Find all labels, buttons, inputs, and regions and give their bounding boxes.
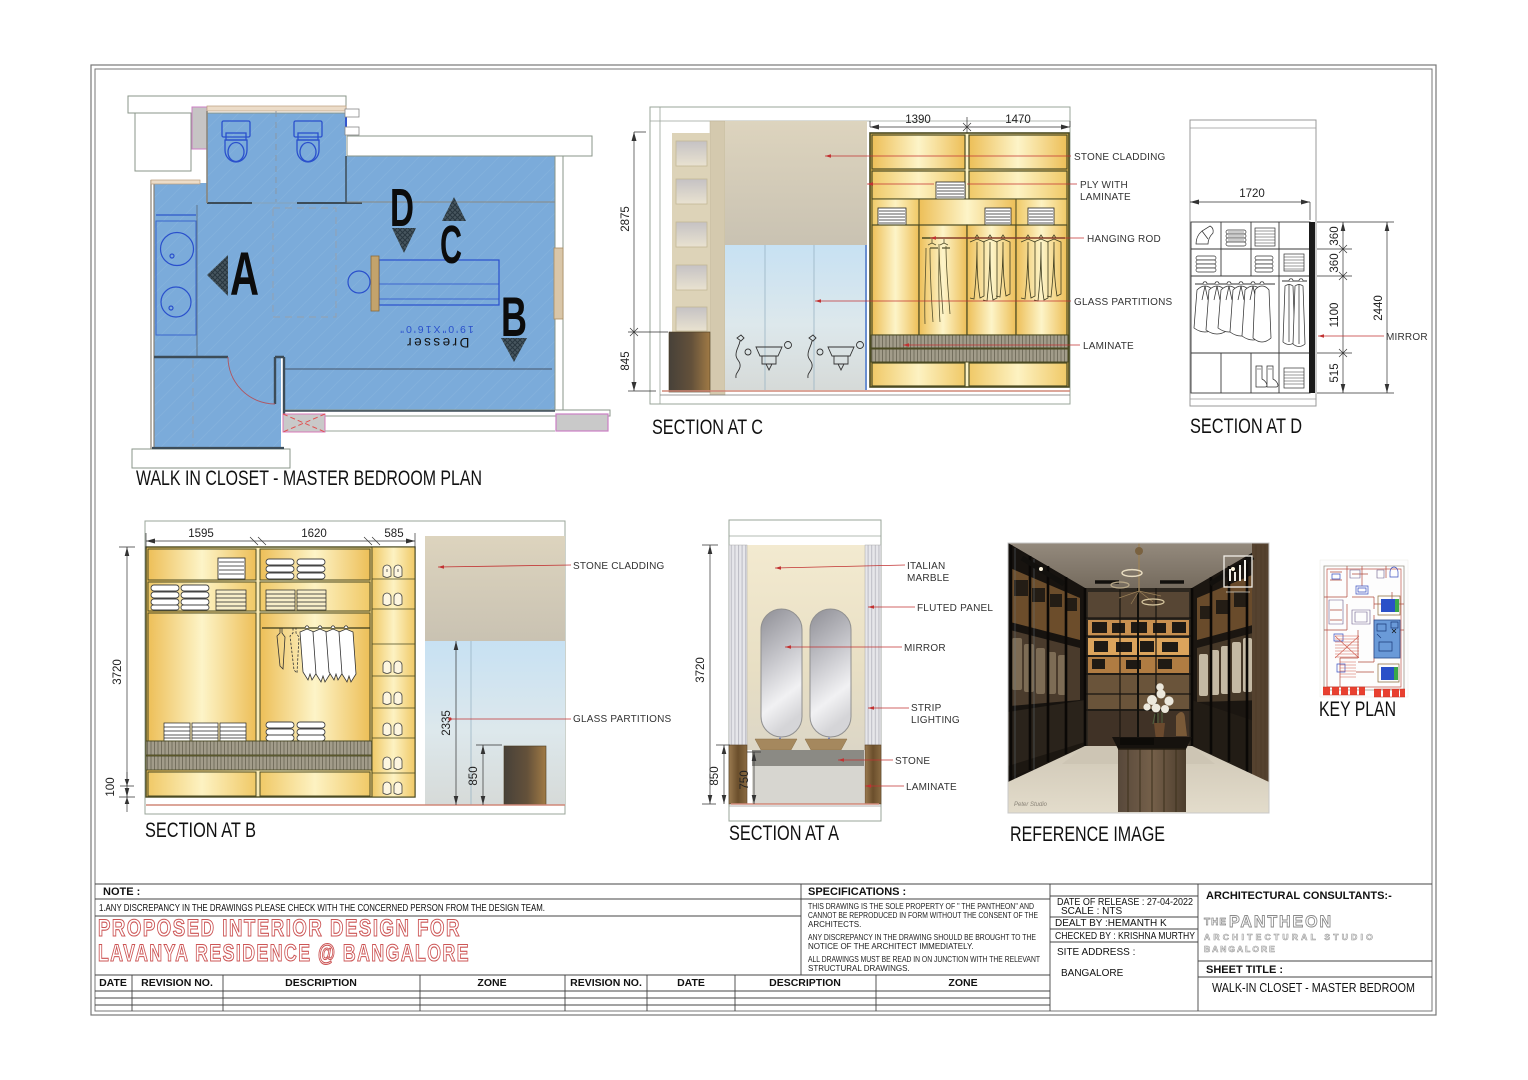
svg-text:STONE CLADDING: STONE CLADDING — [573, 561, 665, 572]
svg-text:FLUTED PANEL: FLUTED PANEL — [917, 603, 993, 614]
svg-text:850: 850 — [468, 766, 480, 785]
svg-text:NOTICE OF THE ARCHITECT IMMED: NOTICE OF THE ARCHITECT IMMEDIATELY. — [808, 942, 974, 951]
svg-text:STRIP: STRIP — [911, 703, 942, 714]
svg-text:2335: 2335 — [441, 710, 453, 736]
svg-text:3720: 3720 — [112, 659, 124, 685]
svg-text:850: 850 — [709, 766, 721, 785]
svg-text:NOTE :: NOTE : — [103, 886, 140, 898]
svg-text:DATE: DATE — [99, 977, 127, 989]
svg-text:DESCRIPTION: DESCRIPTION — [285, 977, 357, 989]
svg-text:1470: 1470 — [1005, 114, 1031, 126]
svg-text:1620: 1620 — [301, 528, 327, 540]
svg-text:CANNOT BE REPRODUCED IN FORM W: CANNOT BE REPRODUCED IN FORM WITHOUT THE… — [808, 911, 1038, 920]
svg-text:360: 360 — [1329, 253, 1341, 272]
svg-text:SPECIFICATIONS :: SPECIFICATIONS : — [808, 886, 906, 898]
svg-text:ANY DISCREPANCY IN THE DRAWING: ANY DISCREPANCY IN THE DRAWING SHOULD BE… — [808, 933, 1036, 942]
svg-text:THE: THE — [1204, 917, 1227, 928]
svg-text:LAMINATE: LAMINATE — [1083, 341, 1134, 352]
svg-text:DATE: DATE — [677, 977, 705, 989]
svg-text:BANGALORE: BANGALORE — [1061, 968, 1124, 979]
svg-text:3720: 3720 — [695, 657, 707, 683]
svg-text:DESCRIPTION: DESCRIPTION — [769, 977, 841, 989]
svg-text:1595: 1595 — [188, 528, 214, 540]
svg-text:SECTION AT C: SECTION AT C — [652, 416, 763, 439]
svg-text:ZONE: ZONE — [948, 977, 977, 989]
svg-text:SHEET TITLE :: SHEET TITLE : — [1206, 964, 1283, 976]
svg-text:REVISION NO.: REVISION NO. — [570, 977, 642, 989]
svg-text:GLASS PARTITIONS: GLASS PARTITIONS — [573, 714, 672, 725]
svg-text:845: 845 — [620, 351, 632, 370]
svg-text:MIRROR: MIRROR — [904, 643, 946, 654]
svg-text:CHECKED BY : KRISHNA MURTHY: CHECKED BY : KRISHNA MURTHY — [1055, 931, 1195, 942]
svg-text:ALL DRAWINGS MUST BE READ IN O: ALL DRAWINGS MUST BE READ IN ON JUNCTION… — [808, 955, 1040, 964]
svg-text:1.ANY DISCREPANCY IN THE DRAWI: 1.ANY DISCREPANCY IN THE DRAWINGS PLEASE… — [99, 903, 545, 914]
svg-text:SCALE : NTS: SCALE : NTS — [1061, 906, 1122, 917]
svg-text:1100: 1100 — [1329, 303, 1341, 328]
svg-text:HANGING ROD: HANGING ROD — [1087, 234, 1161, 245]
svg-text:2875: 2875 — [620, 206, 632, 232]
svg-text:THIS DRAWING IS THE SOLE PROPE: THIS DRAWING IS THE SOLE PROPERTY OF " T… — [808, 902, 1034, 911]
svg-text:SECTION AT A: SECTION AT A — [729, 822, 839, 845]
svg-text:100: 100 — [105, 777, 117, 796]
svg-text:750: 750 — [739, 770, 751, 789]
svg-text:PLY WITH: PLY WITH — [1080, 180, 1128, 191]
svg-text:GLASS PARTITIONS: GLASS PARTITIONS — [1074, 297, 1173, 308]
svg-text:ITALIAN: ITALIAN — [907, 561, 945, 572]
svg-text:Dresser: Dresser — [405, 335, 470, 350]
svg-text:SITE ADDRESS :: SITE ADDRESS : — [1057, 947, 1135, 958]
svg-text:ARCHITECTURAL STUDIO: ARCHITECTURAL STUDIO — [1204, 932, 1376, 942]
svg-text:2440: 2440 — [1373, 295, 1385, 321]
svg-text:STONE CLADDING: STONE CLADDING — [1074, 152, 1166, 163]
svg-text:LAVANYA RESIDENCE @ BANGALORE: LAVANYA RESIDENCE @ BANGALORE — [98, 940, 470, 967]
svg-text:STONE: STONE — [895, 756, 930, 767]
svg-text:PANTHEON: PANTHEON — [1229, 912, 1333, 931]
svg-text:ARCHITECTURAL CONSULTANTS:-: ARCHITECTURAL CONSULTANTS:- — [1206, 890, 1392, 902]
svg-text:Peter Studio: Peter Studio — [1014, 802, 1048, 808]
svg-text:REVISION NO.: REVISION NO. — [141, 977, 213, 989]
svg-text:PROPOSED INTERIOR DESIGN FOR: PROPOSED INTERIOR DESIGN FOR — [98, 915, 461, 942]
svg-text:LAMINATE: LAMINATE — [1080, 192, 1131, 203]
svg-text:KEY PLAN: KEY PLAN — [1319, 698, 1396, 721]
svg-text:WALK-IN CLOSET - MASTER BEDROO: WALK-IN CLOSET - MASTER BEDROOM — [1212, 980, 1415, 995]
svg-text:LAMINATE: LAMINATE — [906, 782, 957, 793]
svg-text:BANGALORE: BANGALORE — [1204, 944, 1277, 954]
svg-text:ARCHITECTS.: ARCHITECTS. — [808, 920, 861, 929]
svg-text:SECTION AT B: SECTION AT B — [145, 819, 256, 842]
svg-text:MARBLE: MARBLE — [907, 573, 949, 584]
svg-text:360: 360 — [1329, 226, 1341, 245]
svg-text:WALK IN CLOSET - MASTER BEDROO: WALK IN CLOSET - MASTER BEDROOM PLAN — [136, 467, 482, 490]
svg-text:DEALT BY :HEMANTH K: DEALT BY :HEMANTH K — [1055, 918, 1167, 929]
svg-text:STRUCTURAL DRAWINGS.: STRUCTURAL DRAWINGS. — [808, 964, 910, 973]
svg-text:585: 585 — [384, 528, 403, 540]
svg-text:19'0"X16'0": 19'0"X16'0" — [398, 323, 474, 335]
svg-text:LIGHTING: LIGHTING — [911, 715, 960, 726]
svg-text:SECTION AT D: SECTION AT D — [1190, 415, 1302, 438]
svg-text:ZONE: ZONE — [477, 977, 506, 989]
svg-text:1720: 1720 — [1239, 188, 1265, 200]
svg-text:1390: 1390 — [905, 114, 931, 126]
svg-text:REFERENCE IMAGE: REFERENCE IMAGE — [1010, 823, 1165, 846]
svg-text:C: C — [440, 215, 462, 275]
svg-text:A: A — [230, 240, 259, 308]
svg-text:MIRROR: MIRROR — [1386, 332, 1428, 343]
svg-text:515: 515 — [1329, 363, 1341, 382]
